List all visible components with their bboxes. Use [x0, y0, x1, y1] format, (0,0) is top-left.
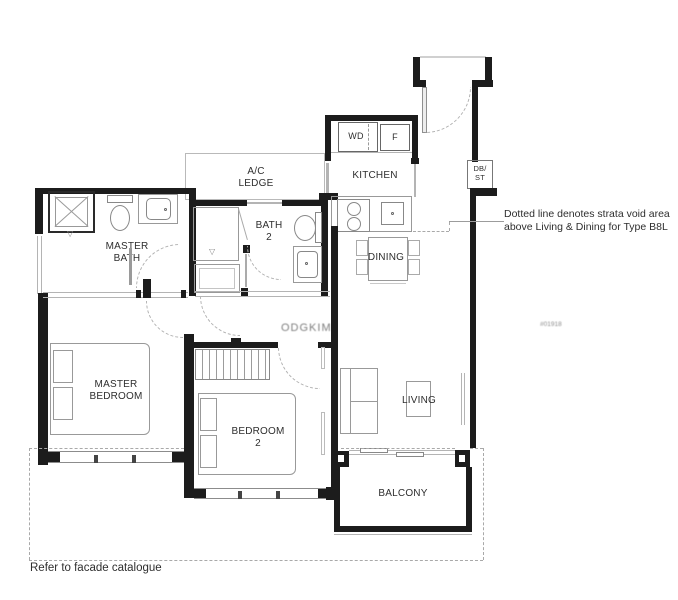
window-symbol — [41, 236, 42, 294]
door-frame-marker — [181, 290, 186, 298]
room-label-master-bedroom: MASTER BEDROOM — [89, 379, 142, 402]
window-end-cap — [172, 452, 184, 462]
table-shadow-line — [370, 283, 406, 284]
wall-segment — [325, 115, 331, 161]
window-mullion — [238, 491, 242, 499]
window-end-cap — [48, 452, 60, 462]
wall-segment — [472, 80, 493, 87]
room-label-balcony: BALCONY — [378, 488, 427, 500]
wall-segment — [143, 279, 151, 298]
chair-symbol — [408, 240, 420, 256]
drain-marker: ▽ — [209, 247, 215, 256]
window-symbol — [194, 488, 330, 489]
door-leaf-line — [129, 248, 132, 285]
room-label-ac-ledge: A/C LEDGE — [239, 166, 274, 189]
window-symbol — [48, 462, 184, 463]
wall-segment — [485, 57, 492, 82]
sliding-door-panel — [396, 452, 424, 457]
window-symbol — [194, 498, 330, 499]
door-frame-marker — [136, 290, 141, 298]
wall-segment — [334, 467, 340, 532]
threshold-line — [43, 292, 188, 293]
sofa-seat-line — [350, 401, 378, 402]
window-symbol — [37, 236, 38, 294]
pillow-symbol — [200, 398, 217, 431]
sink-symbol — [146, 198, 171, 220]
strata-void-dashed-line — [29, 448, 30, 560]
balcony-column-core — [459, 455, 465, 462]
room-label-kitchen: KITCHEN — [352, 170, 397, 182]
pillow-symbol — [53, 350, 73, 383]
strata-void-dashed-line — [483, 448, 484, 560]
label-db-store: DB/ ST — [473, 165, 486, 182]
room-label-living: LIVING — [402, 395, 436, 407]
watermark: ODGKIM — [281, 322, 332, 334]
toilet-symbol — [315, 212, 322, 243]
strata-void-dashed-line — [470, 448, 483, 449]
watermark: #01918 — [540, 321, 562, 328]
wall-segment — [412, 115, 418, 160]
window-symbol — [464, 373, 465, 425]
window-mullion — [132, 455, 136, 463]
strata-void-dashed-line — [29, 560, 483, 561]
door-leaf-line — [245, 254, 247, 287]
toilet-bowl — [110, 205, 130, 231]
toilet-bowl — [294, 215, 316, 241]
window-mullion — [276, 491, 280, 499]
wall-segment — [413, 80, 426, 87]
annotation-text: Dotted line denotes strata void area abo… — [504, 208, 678, 234]
room-label-bedroom-2: BEDROOM 2 — [231, 426, 284, 449]
toilet-symbol — [107, 195, 133, 203]
wall-segment — [334, 526, 472, 532]
threshold-line — [195, 291, 330, 292]
balcony-edge-line — [334, 534, 472, 535]
stove-burner — [347, 217, 361, 231]
window-end-cap — [194, 489, 206, 498]
room-label-dining: DINING — [368, 252, 404, 264]
pillow-symbol — [200, 435, 217, 468]
threshold-line — [43, 297, 188, 298]
chair-symbol — [356, 240, 368, 256]
faucet-dot — [305, 262, 308, 265]
window-symbol — [326, 163, 329, 193]
stove-burner — [347, 202, 361, 216]
strata-void-dashed-line — [449, 222, 450, 231]
wall-segment — [282, 200, 328, 206]
strata-void-dashed-line — [29, 448, 184, 449]
faucet-dot — [164, 208, 167, 211]
footer-note: Refer to facade catalogue — [30, 562, 162, 575]
wardrobe-symbol — [195, 349, 270, 380]
cabinet-divider — [368, 124, 369, 150]
window-symbol — [461, 373, 462, 425]
window-symbol — [321, 412, 325, 455]
floor-plan: DB/ ST WD F KITCHEN ▽ MASTER BATH ▽ — [0, 0, 678, 600]
door-frame-marker — [231, 338, 241, 343]
wall-segment — [472, 87, 478, 162]
drain-marker: ▽ — [67, 229, 73, 238]
door-head-line — [420, 56, 486, 58]
strata-void-dashed-line — [341, 448, 455, 449]
ledge-window-line — [247, 202, 282, 204]
wall-segment — [470, 196, 476, 448]
shower-tray-symbol — [193, 207, 239, 261]
window-mullion — [94, 455, 98, 463]
wall-segment — [195, 200, 247, 206]
faucet-dot — [391, 212, 394, 215]
threshold-line — [195, 296, 330, 297]
balcony-column-core — [338, 455, 344, 462]
room-label-master-bath: MASTER BATH — [106, 241, 149, 264]
chair-symbol — [356, 259, 368, 275]
wall-segment — [321, 200, 328, 296]
chair-symbol — [408, 259, 420, 275]
wall-segment — [38, 293, 48, 465]
wall-segment — [35, 188, 43, 234]
bath-fixture-inner — [199, 268, 235, 289]
annotation-leader-line — [449, 221, 504, 222]
label-washer-dryer: WD — [348, 131, 363, 143]
label-fridge: F — [392, 132, 398, 144]
wall-edge-line — [414, 164, 416, 197]
shower-screen-line — [238, 209, 248, 240]
pillow-symbol — [53, 387, 73, 420]
wall-segment — [466, 467, 472, 526]
counter-edge-line — [331, 152, 412, 153]
wall-segment — [325, 115, 418, 121]
strata-void-dashed-line — [413, 231, 449, 232]
door-leaf-line — [321, 347, 325, 369]
room-label-bath-2: BATH 2 — [256, 220, 283, 243]
wall-segment — [184, 334, 194, 498]
wall-segment — [470, 188, 497, 196]
window-symbol — [48, 451, 184, 452]
